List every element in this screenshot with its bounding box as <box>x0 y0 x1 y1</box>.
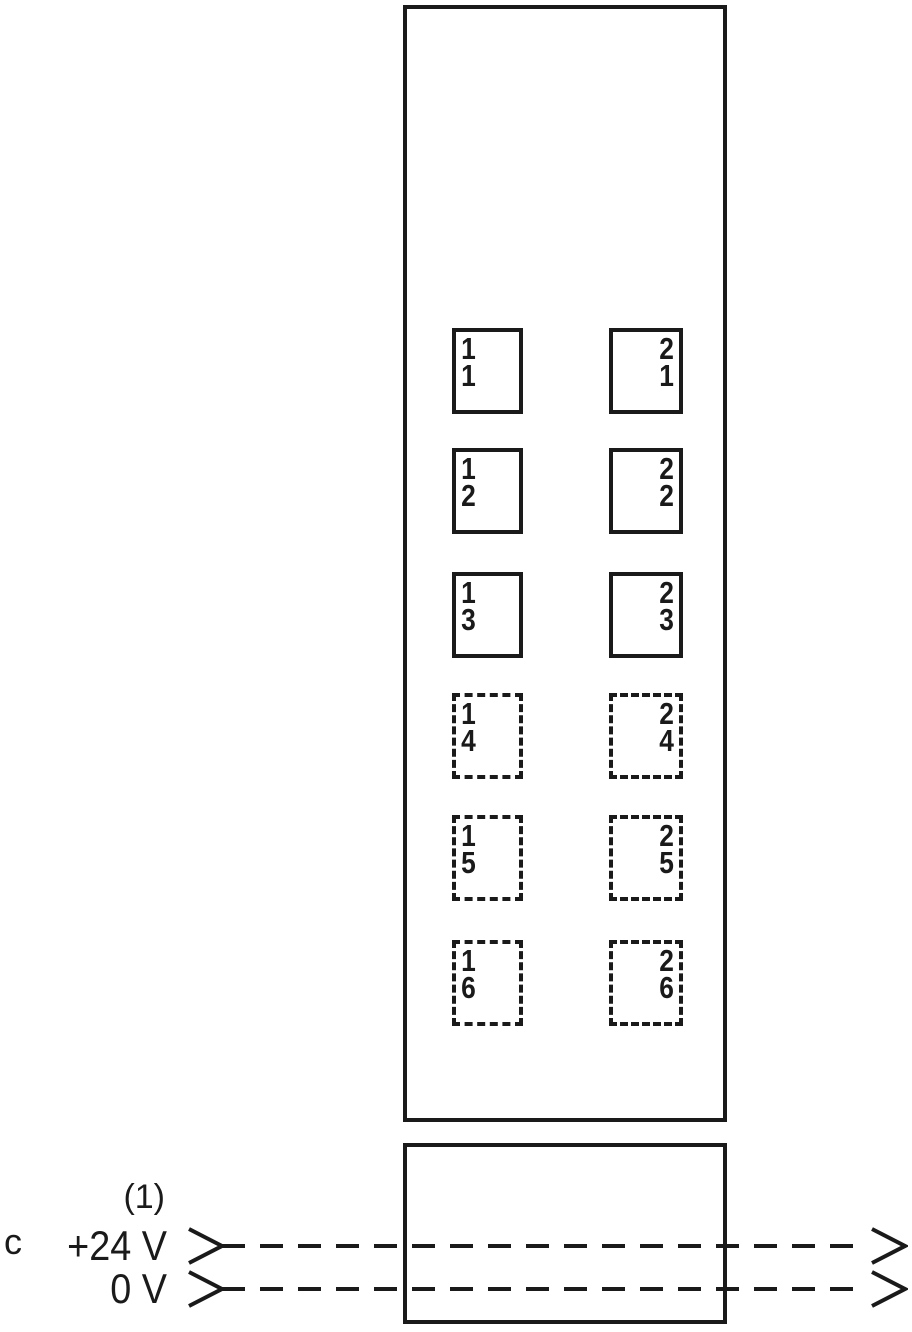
connector-box-label: 2 5 <box>623 819 679 876</box>
wire-source-fork-icon <box>189 1272 222 1306</box>
connector-box-2-4: 2 4 <box>609 693 683 779</box>
connector-box-label: 1 1 <box>456 332 510 389</box>
zero-v-wire <box>186 1269 908 1309</box>
connector-box-1-3: 1 3 <box>452 572 523 658</box>
connector-box-label: 2 6 <box>623 944 679 1001</box>
connector-box-2-2: 2 2 <box>609 448 683 534</box>
connector-box-label: 1 4 <box>456 697 510 754</box>
connector-box-label: 1 2 <box>456 452 510 509</box>
connector-box-1-4: 1 4 <box>452 693 523 779</box>
connector-box-1-6: 1 6 <box>452 940 523 1026</box>
figure-letter-label: c <box>4 1222 22 1262</box>
wiring-diagram: 1 1 1 2 1 3 1 4 1 5 1 6 2 <box>0 0 912 1332</box>
connector-box-1-5: 1 5 <box>452 815 523 901</box>
wire-arrow-right-icon <box>872 1229 905 1263</box>
connector-box-label: 2 3 <box>623 576 679 633</box>
connector-box-label: 2 1 <box>623 332 679 389</box>
plus-24v-label: +24 V <box>26 1225 167 1267</box>
connector-box-2-5: 2 5 <box>609 815 683 901</box>
connector-box-label: 1 3 <box>456 576 510 633</box>
connector-box-label: 1 5 <box>456 819 510 876</box>
wire-source-fork-icon <box>189 1229 222 1263</box>
connector-box-1-2: 1 2 <box>452 448 523 534</box>
connector-box-2-3: 2 3 <box>609 572 683 658</box>
connector-box-2-1: 2 1 <box>609 328 683 414</box>
connector-box-1-1: 1 1 <box>452 328 523 414</box>
callout-1-label: (1) <box>60 1180 165 1214</box>
connector-box-label: 2 2 <box>623 452 679 509</box>
wire-arrow-right-icon <box>872 1272 905 1306</box>
zero-v-label: 0 V <box>26 1268 167 1310</box>
connector-box-label: 2 4 <box>623 697 679 754</box>
connector-box-label: 1 6 <box>456 944 510 1001</box>
connector-box-2-6: 2 6 <box>609 940 683 1026</box>
plus-24v-wire <box>186 1226 908 1266</box>
